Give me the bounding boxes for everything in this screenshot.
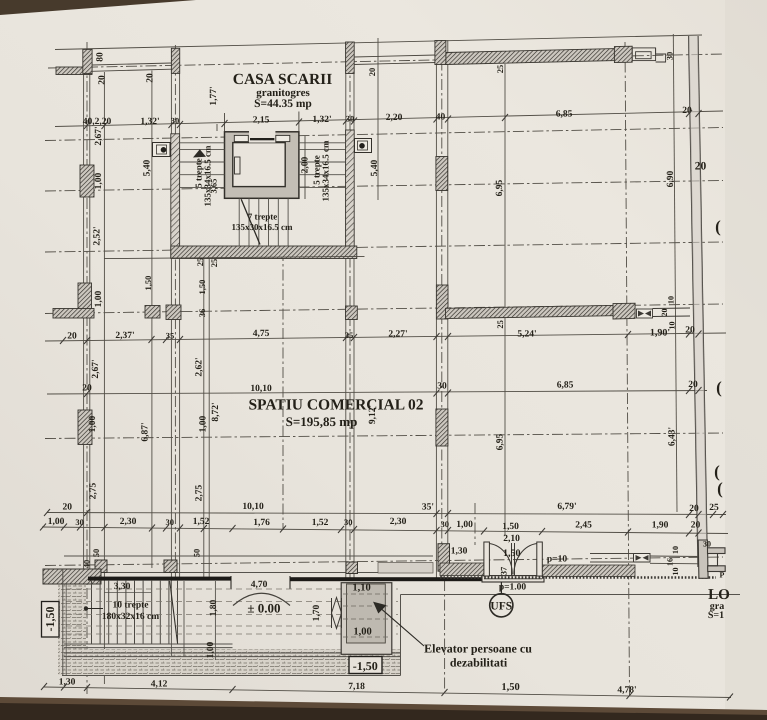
svg-text:1,30: 1,30 (451, 547, 468, 557)
svg-text:2,45: 2,45 (575, 521, 592, 531)
svg-text:SPATIU COMERCIAL 02: SPATIU COMERCIAL 02 (248, 397, 423, 414)
svg-text:(: ( (716, 378, 722, 397)
svg-text:20: 20 (685, 326, 695, 336)
svg-text:80: 80 (96, 52, 106, 62)
svg-text:37: 37 (499, 566, 509, 575)
svg-text:2,20: 2,20 (386, 113, 403, 123)
svg-text:10: 10 (671, 568, 680, 576)
svg-text:S=1: S=1 (708, 610, 724, 621)
svg-text:180x32x16 cm: 180x32x16 cm (102, 612, 159, 622)
svg-text:1,52: 1,52 (193, 517, 210, 527)
svg-text:2,67': 2,67' (91, 359, 101, 378)
svg-text:1,50: 1,50 (143, 276, 153, 291)
svg-text:dezabilitati: dezabilitati (450, 656, 508, 670)
svg-text:1,00: 1,00 (94, 172, 104, 189)
svg-text:2,10: 2,10 (503, 534, 520, 544)
svg-text:(: ( (715, 217, 721, 236)
svg-text:5,40: 5,40 (370, 159, 380, 176)
svg-text:6,43': 6,43' (668, 427, 678, 446)
svg-text:30: 30 (75, 517, 84, 527)
svg-text:135x34x16.5 cm: 135x34x16.5 cm (203, 145, 213, 206)
svg-text:1,00: 1,00 (94, 290, 104, 307)
svg-text:25: 25 (209, 259, 219, 268)
svg-text:10: 10 (667, 296, 676, 304)
svg-text:135x34x16.5 cm: 135x34x16.5 cm (321, 140, 331, 201)
svg-text:2,15: 2,15 (253, 116, 270, 126)
svg-text:6,87': 6,87' (141, 422, 151, 441)
svg-text:1,00: 1,00 (456, 520, 473, 530)
svg-text:p=10: p=10 (547, 555, 567, 565)
svg-text:10: 10 (668, 322, 677, 330)
svg-text:7,18: 7,18 (348, 682, 365, 692)
svg-text:2,52': 2,52' (93, 226, 103, 245)
svg-text:1,00: 1,00 (48, 517, 65, 527)
svg-text:30: 30 (440, 519, 449, 529)
svg-text:20: 20 (688, 380, 698, 390)
svg-text:(: ( (717, 479, 723, 498)
svg-text:6,79': 6,79' (557, 502, 576, 512)
svg-text:4,70: 4,70 (251, 580, 268, 590)
svg-text:20: 20 (695, 161, 707, 173)
svg-text:135x30x16.5 cm: 135x30x16.5 cm (232, 222, 293, 232)
svg-text:1,10: 1,10 (352, 583, 370, 594)
svg-text:25: 25 (495, 65, 505, 74)
svg-text:2,75: 2,75 (195, 484, 205, 501)
svg-text:3,65: 3,65 (209, 179, 219, 194)
svg-text:1,00: 1,00 (353, 627, 371, 638)
svg-text:2,37': 2,37' (115, 331, 134, 341)
svg-text:1,77': 1,77' (209, 86, 219, 105)
svg-text:36: 36 (197, 309, 207, 318)
svg-text:10: 10 (671, 546, 680, 554)
svg-text:20: 20 (82, 384, 92, 394)
svg-text:4,75: 4,75 (253, 329, 270, 339)
svg-text:P: P (720, 571, 725, 580)
svg-text:S=195,85 mp: S=195,85 mp (286, 414, 358, 429)
svg-text:UFS: UFS (490, 601, 512, 613)
svg-text:1,32': 1,32' (140, 117, 159, 127)
svg-text:6,95: 6,95 (495, 179, 505, 196)
svg-text:30: 30 (166, 517, 175, 527)
svg-text:20: 20 (67, 332, 77, 342)
svg-text:50: 50 (91, 549, 101, 558)
svg-text:16: 16 (666, 558, 675, 566)
svg-text:1,50: 1,50 (197, 280, 207, 295)
svg-text:20: 20 (660, 309, 669, 317)
svg-text:6,90: 6,90 (666, 170, 676, 187)
svg-text:10,10: 10,10 (250, 384, 272, 394)
svg-text:3,30: 3,30 (114, 582, 131, 592)
svg-text:20: 20 (98, 75, 108, 85)
svg-text:± 0.00: ± 0.00 (247, 601, 280, 616)
svg-text:4,78': 4,78' (617, 686, 636, 696)
svg-text:2,62': 2,62' (195, 357, 205, 376)
svg-text:10 trepte: 10 trepte (113, 601, 149, 611)
svg-text:1,76: 1,76 (253, 518, 270, 528)
svg-text:p=1.00: p=1.00 (499, 583, 527, 593)
svg-text:4,12: 4,12 (151, 680, 168, 690)
svg-text:Elevator persoane cu: Elevator persoane cu (424, 642, 532, 656)
svg-text:1,00: 1,00 (206, 641, 216, 658)
svg-text:1,00: 1,00 (88, 415, 98, 432)
svg-text:9,12': 9,12' (368, 405, 378, 424)
svg-text:1,00: 1,00 (199, 415, 209, 432)
svg-text:1,90: 1,90 (652, 521, 669, 531)
svg-text:1,52: 1,52 (312, 518, 329, 528)
svg-text:7 trepte: 7 trepte (248, 212, 278, 222)
svg-text:30: 30 (703, 540, 711, 549)
svg-text:25: 25 (195, 258, 205, 267)
svg-text:20: 20 (63, 503, 73, 513)
svg-text:2,75: 2,75 (89, 482, 99, 499)
svg-text:1,32': 1,32' (312, 115, 331, 125)
svg-text:1,80: 1,80 (209, 599, 219, 616)
svg-text:6,85: 6,85 (557, 381, 574, 391)
svg-text:-1,50: -1,50 (353, 659, 378, 673)
svg-text:2,30: 2,30 (120, 517, 137, 527)
svg-text:2,00: 2,00 (301, 156, 311, 173)
svg-text:CASA SCARII: CASA SCARII (233, 71, 333, 88)
svg-text:20: 20 (367, 68, 377, 77)
svg-text:1,50: 1,50 (501, 682, 519, 693)
svg-text:8,72': 8,72' (211, 402, 221, 421)
svg-text:30: 30 (344, 517, 353, 527)
svg-text:40: 40 (82, 560, 92, 569)
svg-text:25: 25 (495, 320, 505, 329)
svg-text:1,50: 1,50 (502, 522, 519, 532)
svg-text:6,95: 6,95 (496, 433, 506, 450)
svg-text:5,24': 5,24' (517, 330, 536, 340)
svg-text:1,50: 1,50 (503, 548, 521, 559)
svg-text:2,67': 2,67' (94, 126, 104, 145)
svg-text:25: 25 (709, 503, 719, 513)
svg-text:S=44.35 mp: S=44.35 mp (254, 98, 312, 110)
svg-text:1,30: 1,30 (59, 678, 76, 688)
svg-text:35': 35' (422, 503, 434, 513)
svg-text:1,70: 1,70 (312, 604, 322, 621)
svg-text:20: 20 (146, 73, 156, 83)
svg-text:-1,50: -1,50 (43, 607, 57, 632)
svg-text:5,40: 5,40 (143, 159, 153, 176)
svg-text:2,27': 2,27' (388, 330, 407, 340)
svg-text:35: 35 (345, 330, 354, 340)
svg-text:50: 50 (192, 549, 202, 558)
svg-text:20: 20 (691, 521, 701, 531)
svg-text:2,30: 2,30 (390, 517, 407, 527)
svg-text:30: 30 (664, 52, 674, 61)
svg-text:10,10: 10,10 (242, 502, 264, 512)
svg-text:6,85: 6,85 (556, 110, 573, 120)
